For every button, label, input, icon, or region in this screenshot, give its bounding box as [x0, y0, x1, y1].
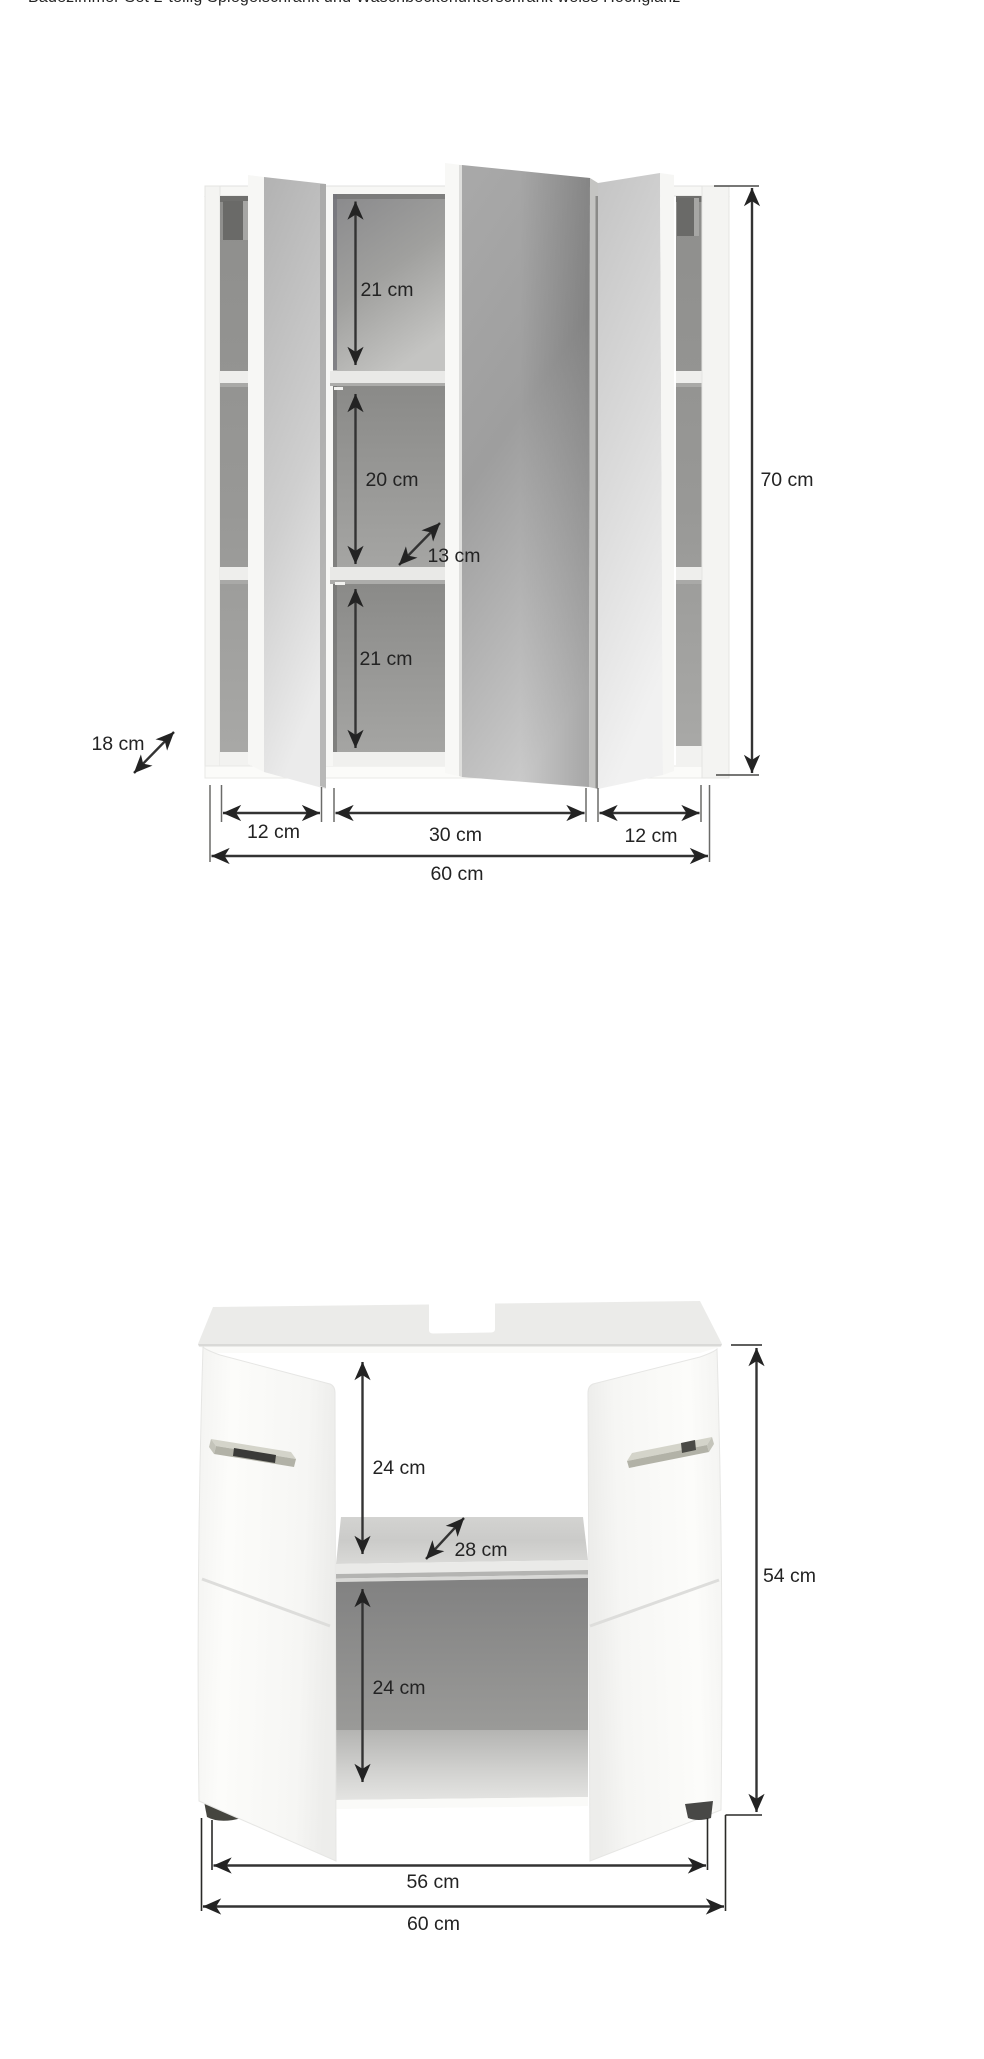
- svg-text:70 cm: 70 cm: [760, 469, 813, 491]
- svg-text:56 cm: 56 cm: [406, 1871, 459, 1893]
- svg-text:60 cm: 60 cm: [430, 863, 483, 885]
- svg-text:24 cm: 24 cm: [372, 1677, 425, 1699]
- svg-text:21 cm: 21 cm: [359, 648, 412, 670]
- svg-text:60 cm: 60 cm: [407, 1913, 460, 1935]
- svg-text:54 cm: 54 cm: [763, 1565, 816, 1587]
- svg-text:21 cm: 21 cm: [360, 279, 413, 301]
- svg-text:24 cm: 24 cm: [372, 1457, 425, 1479]
- svg-text:18 cm: 18 cm: [91, 733, 144, 755]
- svg-text:28 cm: 28 cm: [454, 1539, 507, 1561]
- svg-text:30 cm: 30 cm: [429, 824, 482, 846]
- svg-text:12 cm: 12 cm: [624, 825, 677, 847]
- svg-text:Badezimmer Set 2-teilig Spiege: Badezimmer Set 2-teilig Spiegelschrank u…: [28, 0, 681, 6]
- svg-text:13 cm: 13 cm: [427, 545, 480, 567]
- svg-text:20 cm: 20 cm: [365, 469, 418, 491]
- svg-text:12 cm: 12 cm: [247, 821, 300, 843]
